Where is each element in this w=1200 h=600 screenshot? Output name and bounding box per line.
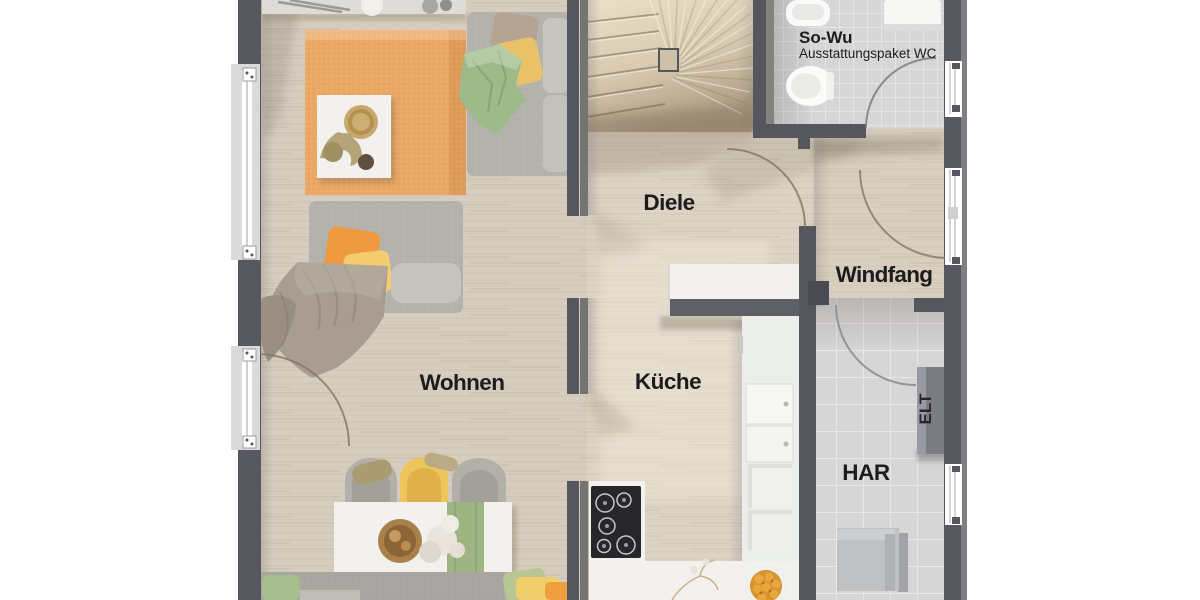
svg-text:HAR: HAR xyxy=(842,460,890,485)
svg-text:Wohnen: Wohnen xyxy=(420,370,505,395)
svg-text:So-Wu: So-Wu xyxy=(799,28,853,47)
svg-text:Windfang: Windfang xyxy=(836,262,933,287)
svg-text:ELT: ELT xyxy=(916,393,935,424)
svg-text:Diele: Diele xyxy=(643,190,694,215)
svg-text:Ausstattungspaket WC: Ausstattungspaket WC xyxy=(799,46,937,61)
svg-text:Küche: Küche xyxy=(635,369,701,394)
